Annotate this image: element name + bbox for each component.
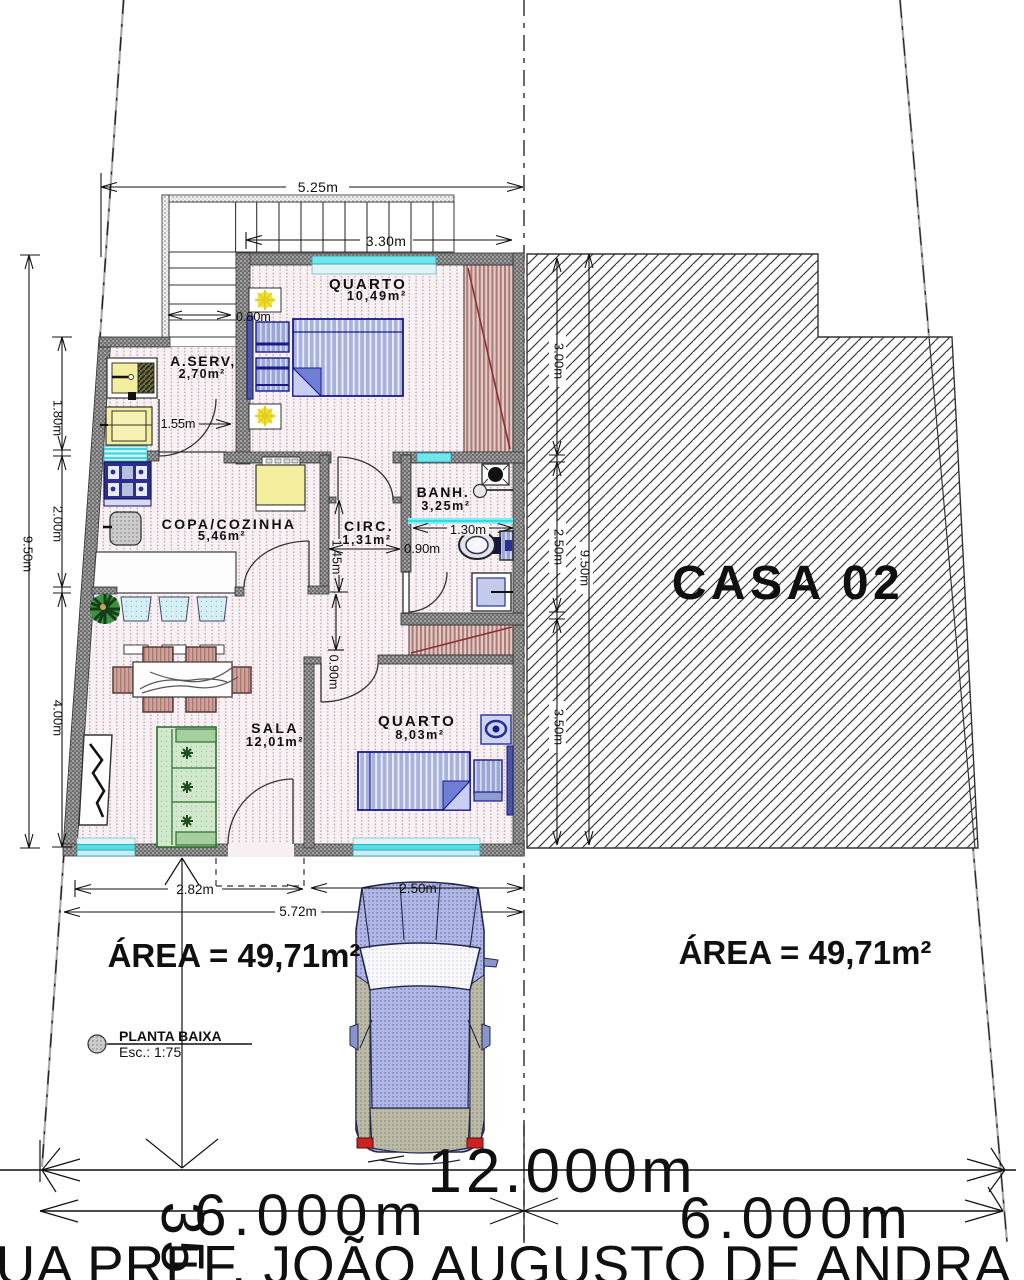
svg-text:BANH.: BANH. — [417, 484, 470, 500]
svg-text:0.90m: 0.90m — [404, 541, 440, 556]
svg-text:5,46m²: 5,46m² — [198, 529, 246, 543]
svg-text:9.50m: 9.50m — [578, 550, 593, 586]
svg-text:0.90m: 0.90m — [327, 655, 341, 690]
svg-text:9.50m: 9.50m — [21, 536, 36, 572]
svg-text:3.50m: 3.50m — [552, 709, 567, 745]
svg-text:ÁREA = 49,71m²: ÁREA = 49,71m² — [679, 934, 932, 971]
svg-text:1.30m: 1.30m — [450, 522, 486, 537]
svg-text:4.00m: 4.00m — [51, 700, 66, 736]
svg-text:5.72m: 5.72m — [279, 904, 317, 919]
svg-text:CASA 02: CASA 02 — [672, 557, 904, 610]
svg-text:8,03m²: 8,03m² — [395, 728, 444, 742]
svg-text:3.00m: 3.00m — [552, 343, 567, 379]
svg-text:RUA PREF. JOÃO AUGUSTO DE ANDR: RUA PREF. JOÃO AUGUSTO DE ANDRA — [0, 1234, 1012, 1280]
svg-text:5.25m: 5.25m — [298, 179, 338, 195]
svg-text:3,25m²: 3,25m² — [421, 499, 470, 513]
svg-text:ÁREA = 49,71m²: ÁREA = 49,71m² — [108, 937, 361, 974]
svg-text:PLANTA BAIXA: PLANTA BAIXA — [119, 1028, 222, 1044]
svg-text:0.80m: 0.80m — [236, 310, 271, 324]
svg-text:3.30m: 3.30m — [366, 233, 406, 249]
svg-text:12.000m: 12.000m — [427, 1137, 696, 1206]
svg-text:2.50m: 2.50m — [552, 529, 567, 565]
svg-text:2.00m: 2.00m — [51, 506, 66, 542]
svg-text:1.55m: 1.55m — [161, 417, 196, 431]
svg-text:2.50m: 2.50m — [399, 881, 437, 896]
svg-text:10,49m²: 10,49m² — [347, 288, 407, 303]
svg-text:12,01m²: 12,01m² — [246, 734, 304, 749]
svg-text:CIRC.: CIRC. — [344, 518, 394, 534]
svg-text:1,31m²: 1,31m² — [342, 533, 391, 547]
svg-text:2,70m²: 2,70m² — [179, 367, 226, 381]
svg-text:Esc.: 1:75: Esc.: 1:75 — [119, 1044, 181, 1060]
svg-text:1.80m: 1.80m — [51, 400, 66, 436]
